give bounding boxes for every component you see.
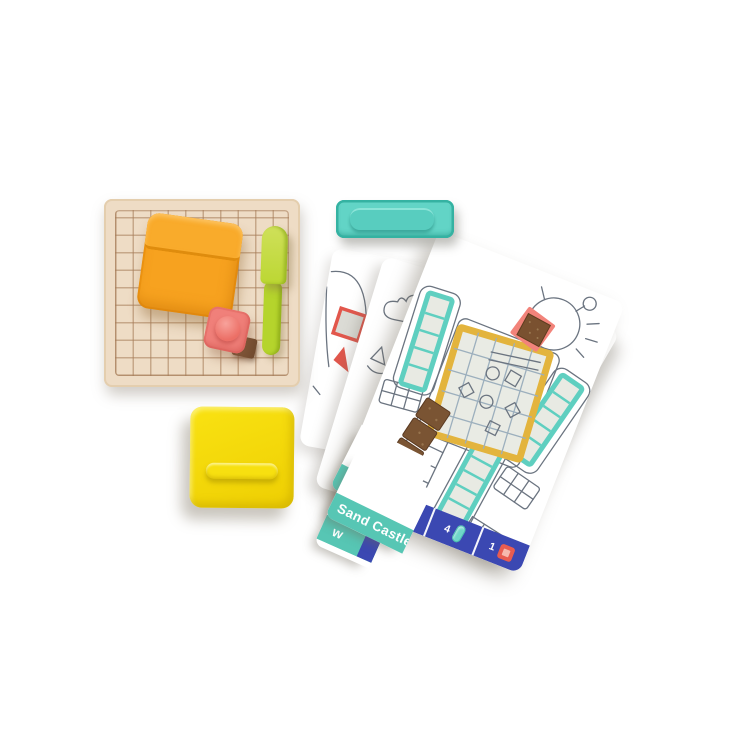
orange-pouch — [136, 212, 244, 320]
product-scene: 1 4 1 w Robot Sand Castle — [0, 0, 750, 750]
stamp-square-icon — [497, 543, 516, 562]
teal-mold-tray — [336, 200, 454, 238]
requirement-count: 1 — [487, 540, 497, 553]
requirement-count: 4 — [442, 523, 452, 536]
mold-capsule-icon — [450, 524, 467, 544]
spatula-tool — [256, 226, 291, 357]
yellow-case — [189, 406, 294, 508]
coral-stamp — [202, 305, 252, 355]
spatula-handle — [262, 281, 283, 356]
case-handle — [206, 463, 278, 480]
stamp-knob — [213, 314, 243, 344]
mold-cavity — [350, 208, 434, 230]
spatula-blade — [260, 226, 288, 285]
